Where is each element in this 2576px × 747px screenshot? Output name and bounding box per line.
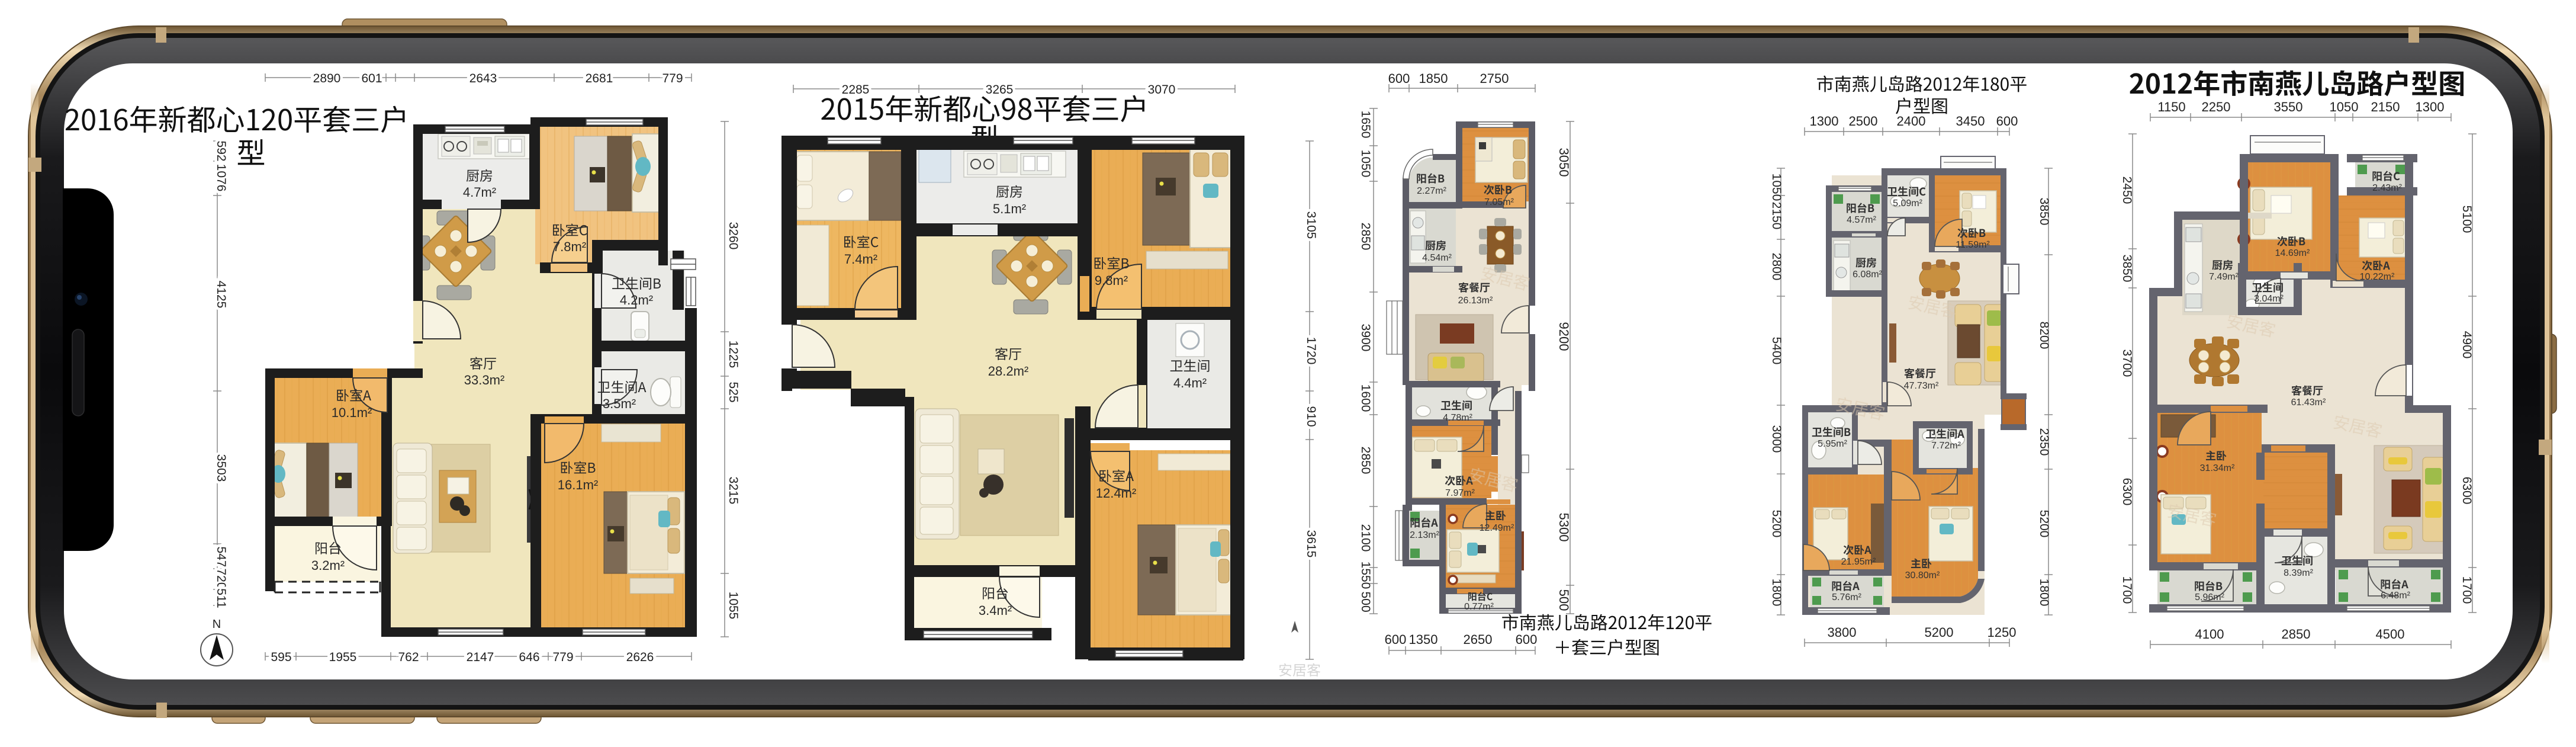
svg-text:3215: 3215 [726,477,740,505]
svg-text:1700: 1700 [2460,576,2474,604]
svg-text:601: 601 [361,72,382,85]
svg-text:1076: 1076 [214,164,228,192]
svg-text:600: 600 [1388,71,1410,86]
svg-text:2681: 2681 [586,72,613,85]
svg-text:2.43m²: 2.43m² [2372,183,2402,193]
svg-text:4.2m²: 4.2m² [620,293,653,307]
svg-text:1800: 1800 [2037,579,2051,607]
svg-text:646: 646 [519,650,539,664]
svg-text:2400: 2400 [1897,114,1926,129]
svg-text:1150: 1150 [2157,100,2185,114]
svg-text:12.4m²: 12.4m² [1096,486,1136,501]
svg-text:1225: 1225 [726,341,740,368]
svg-text:4.54m²: 4.54m² [1422,253,1452,263]
svg-text:1720: 1720 [1304,337,1318,365]
svg-text:4500: 4500 [2376,627,2405,642]
svg-text:547: 547 [214,546,228,567]
svg-text:2147: 2147 [467,650,494,664]
svg-text:33.3m²: 33.3m² [464,373,504,387]
svg-text:1050: 1050 [1359,150,1372,178]
svg-text:2890: 2890 [313,72,341,85]
svg-text:3.2m²: 3.2m² [311,558,345,573]
svg-text:3850: 3850 [2120,255,2134,283]
svg-text:1550: 1550 [1359,562,1372,589]
svg-text:2850: 2850 [1359,447,1372,475]
svg-text:2.27m²: 2.27m² [1417,186,1446,196]
svg-text:600: 600 [1996,114,2018,129]
svg-text:1650: 1650 [1359,111,1372,139]
svg-text:2350: 2350 [2037,428,2051,456]
svg-text:779: 779 [662,72,683,85]
svg-text:1050: 1050 [2330,100,2359,114]
svg-text:3.4m²: 3.4m² [979,603,1012,618]
svg-text:3615: 3615 [1304,530,1318,558]
svg-text:1850: 1850 [1419,71,1448,86]
svg-text:4100: 4100 [2195,627,2224,642]
svg-text:595: 595 [271,650,291,664]
svg-text:762: 762 [398,650,419,664]
svg-text:500: 500 [1359,591,1372,612]
svg-text:5100: 5100 [2460,206,2474,233]
svg-text:1250: 1250 [1988,625,2017,640]
svg-text:21.95m²: 21.95m² [1841,557,1876,567]
svg-text:5.09m²: 5.09m² [1893,198,1922,209]
svg-text:9.8m²: 9.8m² [1095,273,1128,288]
svg-text:3.5m²: 3.5m² [603,396,636,411]
svg-text:3900: 3900 [1359,324,1372,352]
svg-text:5.1m²: 5.1m² [993,201,1026,216]
svg-text:1700: 1700 [2120,576,2134,604]
svg-text:14.69m²: 14.69m² [2275,248,2310,258]
svg-text:2800: 2800 [1770,253,1783,281]
svg-text:3503: 3503 [214,454,228,482]
svg-text:720: 720 [214,568,228,589]
svg-text:525: 525 [726,381,740,402]
svg-text:2850: 2850 [2282,627,2311,642]
svg-text:1800: 1800 [1770,579,1783,607]
svg-text:2250: 2250 [2202,100,2231,114]
svg-text:7.49m²: 7.49m² [2209,272,2239,282]
svg-text:3265: 3265 [986,83,1014,97]
svg-text:592: 592 [214,140,228,161]
svg-text:600: 600 [1516,632,1538,647]
svg-text:2150: 2150 [2371,100,2400,114]
svg-text:3260: 3260 [726,222,740,250]
svg-text:600: 600 [1385,632,1407,647]
svg-text:5200: 5200 [1770,510,1783,538]
svg-text:3000: 3000 [1770,425,1783,453]
svg-text:2750: 2750 [1480,71,1509,86]
svg-text:61.43m²: 61.43m² [2291,397,2326,408]
svg-text:1300: 1300 [1810,114,1839,129]
svg-text:779: 779 [552,650,573,664]
svg-text:3800: 3800 [1828,625,1857,640]
svg-text:3105: 3105 [1304,211,1318,239]
svg-text:30.80m²: 30.80m² [1905,570,1940,581]
svg-text:7.8m²: 7.8m² [553,239,586,254]
svg-text:47.73m²: 47.73m² [1904,381,1939,391]
svg-text:2850: 2850 [1359,223,1372,251]
svg-text:1050: 1050 [1770,174,1783,201]
svg-text:511: 511 [214,588,228,608]
svg-text:31.34m²: 31.34m² [2200,463,2235,473]
svg-text:8200: 8200 [2037,322,2051,350]
svg-text:10.22m²: 10.22m² [2360,272,2395,282]
svg-text:26.13m²: 26.13m² [1458,296,1493,306]
svg-text:5400: 5400 [1770,337,1783,365]
svg-text:1055: 1055 [726,592,740,620]
svg-text:6300: 6300 [2120,478,2134,506]
svg-text:3.04m²: 3.04m² [2254,294,2284,304]
svg-text:4900: 4900 [2460,331,2474,359]
svg-text:4.7m²: 4.7m² [463,185,496,200]
svg-text:8.39m²: 8.39m² [2284,568,2313,578]
svg-text:0.77m²: 0.77m² [1464,602,1494,612]
svg-text:4.4m²: 4.4m² [1173,376,1207,390]
svg-text:7.72m²: 7.72m² [1931,441,1961,451]
svg-text:3050: 3050 [1556,148,1571,177]
svg-text:6.08m²: 6.08m² [1853,270,1882,280]
svg-text:1350: 1350 [1409,632,1438,647]
svg-text:7.4m²: 7.4m² [844,252,877,267]
svg-text:12.49m²: 12.49m² [1480,523,1514,533]
svg-text:1300: 1300 [2416,100,2445,114]
svg-text:2626: 2626 [626,650,654,664]
svg-text:2643: 2643 [469,72,497,85]
svg-text:4125: 4125 [214,281,228,309]
svg-text:5200: 5200 [2037,510,2051,538]
svg-text:7.97m²: 7.97m² [1445,488,1475,498]
svg-text:4.78m²: 4.78m² [1443,413,1472,423]
svg-text:10.1m²: 10.1m² [332,405,372,420]
svg-text:2650: 2650 [1464,632,1493,647]
svg-text:3070: 3070 [1148,83,1176,97]
svg-text:N: N [213,618,221,631]
svg-text:28.2m²: 28.2m² [988,364,1028,379]
svg-text:3700: 3700 [2120,350,2134,377]
svg-text:2450: 2450 [2120,177,2134,204]
svg-text:5300: 5300 [1556,513,1571,542]
svg-text:3550: 3550 [2274,100,2303,114]
svg-text:2150: 2150 [1770,202,1783,230]
svg-text:2.13m²: 2.13m² [1410,530,1439,540]
svg-text:3450: 3450 [1956,114,1985,129]
svg-text:5.96m²: 5.96m² [2195,592,2224,602]
svg-text:6.48m²: 6.48m² [2381,591,2410,601]
svg-text:2500: 2500 [1849,114,1878,129]
svg-text:910: 910 [1304,406,1318,427]
svg-text:5.95m²: 5.95m² [1818,439,1847,449]
svg-text:500: 500 [1556,589,1571,611]
svg-text:4.57m²: 4.57m² [1847,215,1876,225]
svg-text:2100: 2100 [1359,524,1372,552]
svg-text:7.05m²: 7.05m² [1484,197,1514,207]
svg-text:2285: 2285 [842,83,870,97]
svg-text:9200: 9200 [1556,322,1571,351]
svg-text:6300: 6300 [2460,477,2474,505]
svg-text:1600: 1600 [1359,384,1372,412]
svg-text:16.1m²: 16.1m² [558,477,598,492]
svg-text:1955: 1955 [329,650,357,664]
svg-text:5.76m²: 5.76m² [1832,592,1861,602]
svg-text:11.59m²: 11.59m² [1956,240,1990,250]
svg-text:3850: 3850 [2037,198,2051,226]
svg-text:5200: 5200 [1925,625,1954,640]
